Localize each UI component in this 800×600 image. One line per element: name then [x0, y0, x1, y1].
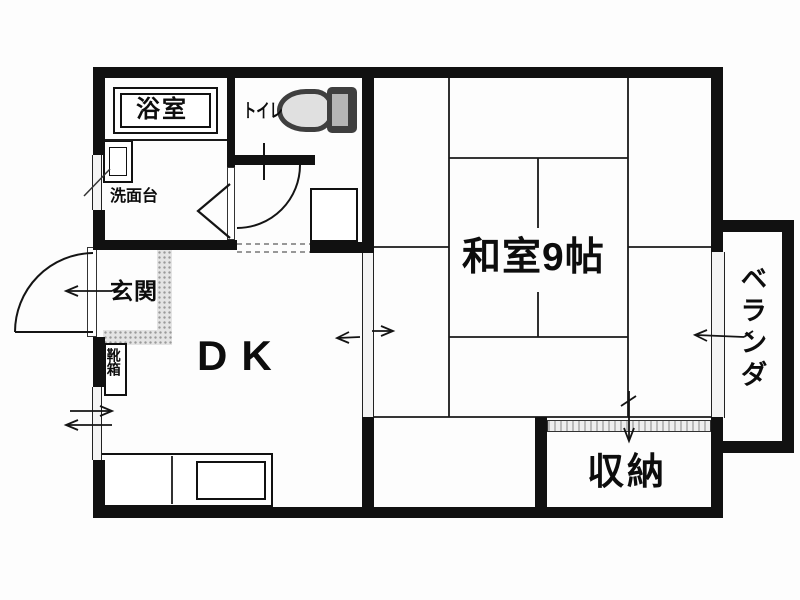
toilet-bottom-wall [235, 155, 315, 165]
storage-left-wall [535, 417, 547, 508]
left-wall-seg3 [93, 337, 105, 387]
toilet-tank-lid [332, 94, 348, 126]
entrance-label: 玄関 [110, 279, 158, 303]
washstand-label: 洗面台 [110, 189, 158, 206]
dk-label: DK [197, 334, 286, 378]
washbasin-inner [109, 147, 127, 176]
veranda-right-wall [782, 220, 794, 453]
bath-toilet-wall [227, 78, 235, 167]
washroom-door-jamb [227, 167, 235, 240]
veranda-bottom-wall [711, 441, 794, 453]
dk-washitsu-sliding-door [362, 253, 374, 417]
kitchen-sink [196, 461, 266, 500]
storage-sliding-door [547, 420, 711, 432]
left-wall-seg4 [93, 460, 105, 518]
storage-access-arrow [621, 391, 636, 441]
appliance-space [310, 188, 358, 242]
east-wall-upper [711, 67, 723, 252]
dk-window-slide-arrows [66, 406, 112, 430]
entrance-door-swing [15, 253, 93, 332]
veranda-label: ベランダ [737, 264, 765, 392]
bath-label: 浴室 [136, 97, 188, 122]
top-wall [93, 67, 723, 78]
toilet-label: トイレ [243, 102, 283, 122]
step-dashed-lines [237, 244, 310, 252]
storage-label: 収納 [587, 453, 667, 492]
toilet-washitsu-wall [362, 78, 374, 242]
entrance-door-leaf [87, 247, 97, 337]
japanese-room-label: 和室9帖 [462, 238, 605, 279]
shoe-box-label: 靴箱 [106, 348, 121, 376]
dk-washitsu-wall-lower [362, 417, 374, 507]
bottom-wall [93, 507, 723, 518]
left-wall-seg1 [93, 67, 105, 155]
storage-right-wall [711, 417, 723, 518]
dk-washitsu-wall-stub [310, 242, 374, 253]
dk-window [92, 387, 102, 460]
floorplan-canvas: 浴室 トイレ 洗面台 玄関 靴箱 DK 和室9帖 収納 ベランダ [0, 0, 800, 600]
washroom-window [92, 155, 102, 210]
washroom-bottom-wall [93, 240, 237, 250]
veranda-sliding-window [711, 252, 725, 418]
washroom-folding-door [198, 184, 230, 238]
